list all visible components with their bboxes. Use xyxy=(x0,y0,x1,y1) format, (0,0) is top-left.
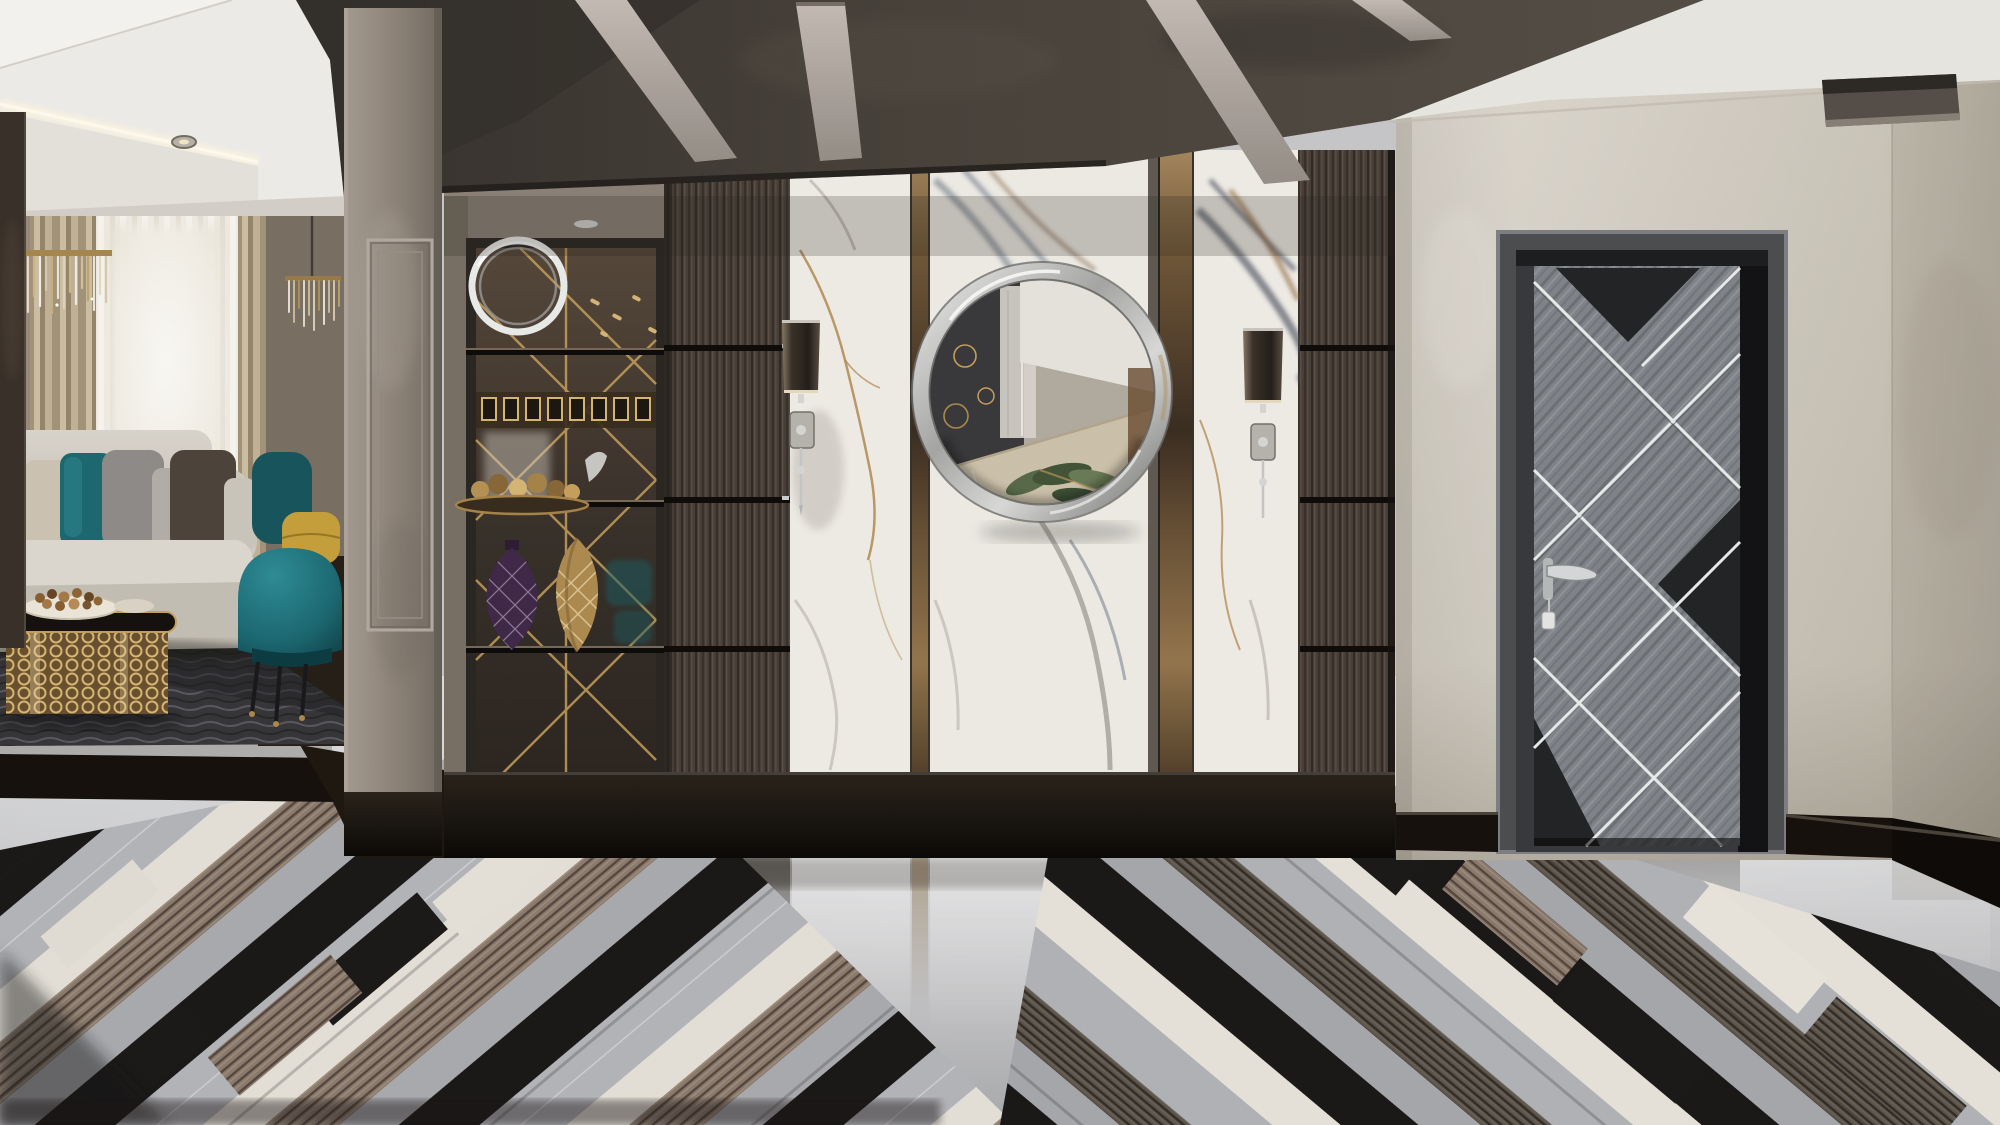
vignette xyxy=(0,0,2000,1125)
interior-render xyxy=(0,0,2000,1125)
